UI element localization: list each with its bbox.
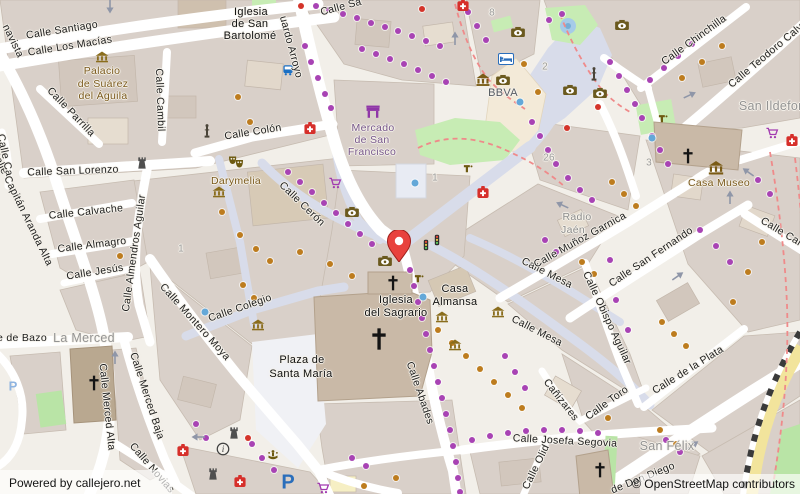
street-label: Calle Sa bbox=[319, 0, 363, 18]
street-label: Calle Carrera bbox=[758, 215, 800, 259]
housenumber-label: 26 bbox=[543, 153, 555, 164]
place-label: San Félix bbox=[640, 439, 695, 453]
place-label: de Suárez bbox=[78, 78, 129, 90]
street-label: uardo Arroyo bbox=[277, 15, 305, 80]
place-label: Francisco bbox=[348, 146, 396, 158]
place-label: Casa Museo bbox=[688, 177, 750, 189]
housenumber-label: 1 bbox=[432, 173, 438, 184]
street-label: Calle Colegio bbox=[207, 292, 274, 325]
street-label: Calle Merced Alta bbox=[96, 363, 117, 451]
place-label: Jaén bbox=[561, 224, 585, 236]
place-label: Palacio bbox=[84, 65, 121, 77]
attribution-osm[interactable]: © OpenStreetMap contributors bbox=[632, 477, 795, 491]
place-label: San Ildefonso bbox=[739, 99, 800, 113]
street-label: Calle Almagro bbox=[57, 235, 127, 255]
street-label: Calle Jesús bbox=[66, 262, 125, 283]
housenumber-label: 8 bbox=[489, 8, 495, 19]
street-label: Calle Mesa bbox=[510, 313, 565, 349]
place-label: Radio bbox=[563, 211, 592, 223]
street-label: Calle San Fernando bbox=[607, 224, 696, 289]
housenumber-label: 3 bbox=[646, 158, 652, 169]
street-label: Calle Obispo Aguilar bbox=[580, 270, 634, 367]
place-label: La Merced bbox=[53, 331, 115, 345]
street-label: Calle Abades bbox=[404, 360, 437, 426]
street-label: Calle Montero Moya bbox=[157, 281, 232, 363]
place-label: Santa María bbox=[269, 368, 332, 380]
attribution-callejero[interactable]: Powered by callejero.net bbox=[9, 476, 140, 490]
place-label: Bartolomé bbox=[224, 30, 277, 42]
street-label: Calle de la Plata bbox=[650, 343, 726, 396]
street-label: Calle Toro bbox=[583, 383, 631, 422]
place-label: Darymelia bbox=[211, 175, 261, 187]
street-label: Calle Cambil bbox=[153, 68, 167, 132]
place-label: de San bbox=[354, 134, 389, 146]
place-label: Almansa bbox=[433, 296, 478, 308]
street-label: navista bbox=[0, 22, 26, 59]
place-label: del Águila bbox=[78, 90, 127, 102]
street-label: Calle Merced Baja bbox=[127, 351, 166, 441]
housenumber-label: 2 bbox=[542, 62, 548, 73]
street-label: Calle Cerón bbox=[277, 179, 328, 228]
place-label: BBVA bbox=[488, 87, 518, 99]
place-label: del Sagrario bbox=[365, 307, 428, 319]
street-label: Calle Teodoro Calvache bbox=[726, 6, 800, 91]
street-label: Calle Chinchilla bbox=[659, 12, 728, 67]
street-label: Cañizares bbox=[541, 377, 581, 424]
street-label: Calle Almendros Aguilar bbox=[120, 194, 148, 313]
location-pin-icon[interactable] bbox=[387, 230, 411, 262]
place-label: Mercado bbox=[352, 122, 395, 134]
map-canvas[interactable]: iPP Calle SantiagoCalle Los Macíasnavist… bbox=[0, 0, 800, 494]
street-label: Calle Colón bbox=[224, 122, 283, 143]
place-label: Iglesia bbox=[379, 294, 413, 306]
street-label: Calle Olid bbox=[520, 443, 552, 492]
street-label: e de Bazo bbox=[0, 332, 47, 344]
place-label: de San bbox=[232, 18, 269, 30]
street-label: Calle Ca bbox=[0, 133, 15, 177]
street-label: Calle Calvache bbox=[48, 202, 124, 222]
street-label: Calle Josefa Segovia bbox=[512, 432, 617, 449]
street-label: Calle San Lorenzo bbox=[27, 163, 119, 178]
place-label: Plaza de bbox=[279, 354, 324, 366]
housenumber-label: 1 bbox=[178, 244, 184, 255]
place-label: Casa bbox=[442, 283, 469, 295]
place-label: Iglesia bbox=[234, 6, 268, 18]
